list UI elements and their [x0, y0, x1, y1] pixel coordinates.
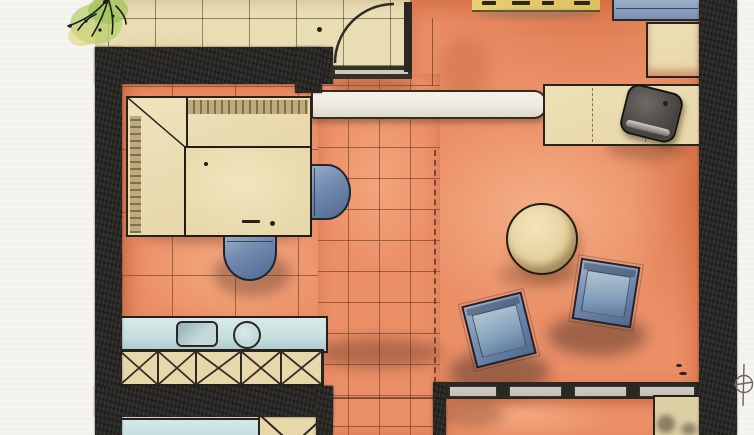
window-pane — [509, 386, 562, 397]
window-pane — [574, 386, 627, 397]
balcony-door-sill — [653, 395, 702, 435]
door-dot — [317, 27, 322, 32]
door-swing-arc — [330, 1, 402, 71]
bench-miter-line — [126, 96, 188, 150]
ink-speck — [676, 364, 682, 367]
pencil-shadow — [478, 10, 598, 19]
wall-bottom — [95, 386, 333, 417]
ink-speck — [679, 372, 687, 375]
window-post — [433, 382, 446, 435]
shadow-corridor — [314, 338, 442, 368]
kitchen-cabinets-xhatch — [118, 349, 324, 387]
utility-room-floor — [122, 418, 258, 435]
sideboard — [311, 90, 547, 119]
area-divider-dashed — [434, 150, 436, 383]
armchair-right — [572, 258, 641, 329]
cutoff-blue-seat — [612, 0, 702, 21]
kitchen-sink — [176, 321, 218, 347]
coffee-table-round — [506, 203, 578, 275]
wall-left — [95, 47, 122, 435]
wall-cabinet — [646, 22, 701, 78]
floor-plan-scan — [0, 0, 754, 435]
kitchen-basin — [233, 321, 261, 349]
area-divider-line — [432, 18, 433, 86]
chair-knob — [663, 101, 668, 106]
wash-balcony — [440, 400, 504, 428]
door-frame-post — [404, 2, 412, 72]
window-pane — [449, 386, 497, 397]
kitchen-counter — [118, 316, 328, 353]
dining-table — [184, 146, 312, 237]
wall-stub — [295, 47, 322, 93]
benchmark-symbol — [731, 362, 754, 408]
wall-stub — [316, 386, 333, 435]
corridor-floor — [318, 74, 440, 435]
